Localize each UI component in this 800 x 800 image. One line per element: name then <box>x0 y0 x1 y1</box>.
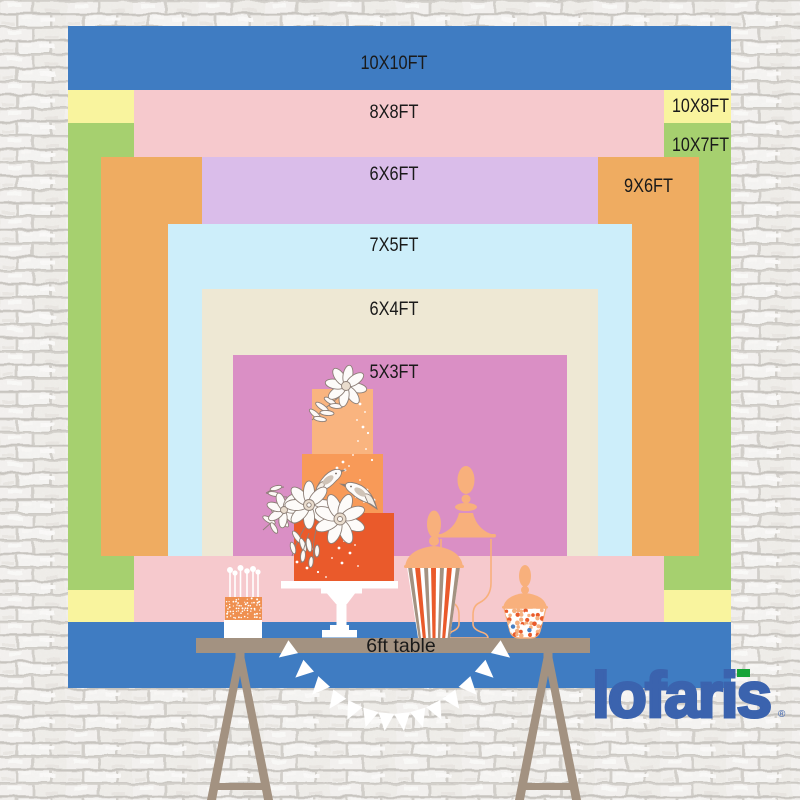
svg-text:7X5FT: 7X5FT <box>370 234 419 256</box>
svg-text:9X6FT: 9X6FT <box>624 175 673 197</box>
svg-text:8X8FT: 8X8FT <box>370 101 419 123</box>
svg-text:10X10FT: 10X10FT <box>361 52 428 74</box>
svg-text:6X4FT: 6X4FT <box>370 298 419 320</box>
svg-text:10X7FT: 10X7FT <box>672 134 729 156</box>
svg-text:6ft table: 6ft table <box>366 635 435 657</box>
svg-text:10X8FT: 10X8FT <box>672 95 729 117</box>
svg-text:5X3FT: 5X3FT <box>370 361 419 383</box>
svg-text:®: ® <box>778 709 786 720</box>
svg-text:6X6FT: 6X6FT <box>370 163 419 185</box>
